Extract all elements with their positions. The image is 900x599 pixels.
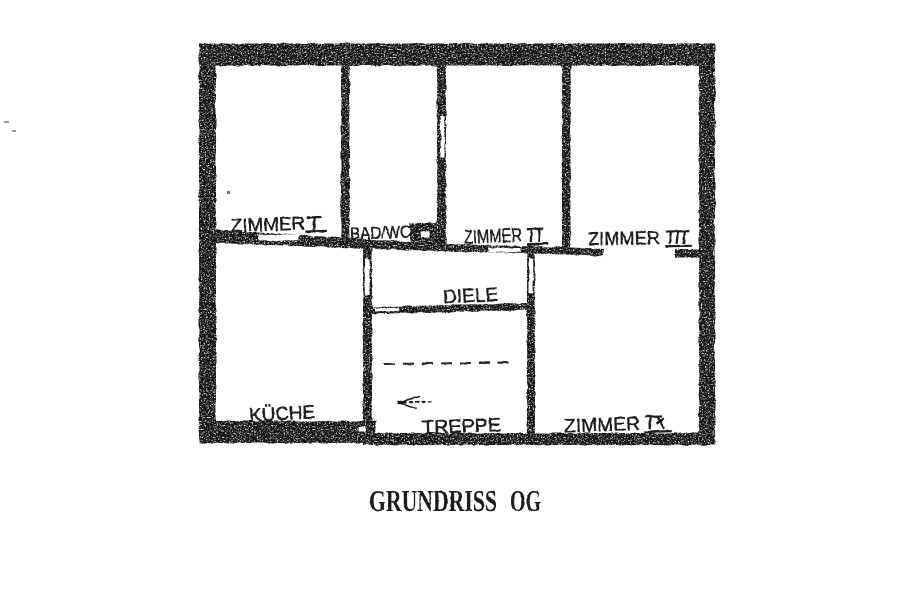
svg-text:ZIMMER: ZIMMER (564, 414, 641, 438)
svg-text:GRUNDRISS: GRUNDRISS (369, 483, 497, 518)
svg-text:ZIMMER: ZIMMER (588, 228, 660, 250)
svg-text:ZIMMER: ZIMMER (464, 225, 523, 248)
svg-text:BAD/WC: BAD/WC (350, 222, 412, 243)
svg-text:TREPPE: TREPPE (422, 415, 502, 439)
svg-text:OG: OG (510, 483, 541, 518)
svg-text:DIELE: DIELE (443, 285, 499, 309)
svg-text:ZIMMER: ZIMMER (231, 214, 306, 238)
svg-text:KÜCHE: KÜCHE (249, 402, 316, 426)
